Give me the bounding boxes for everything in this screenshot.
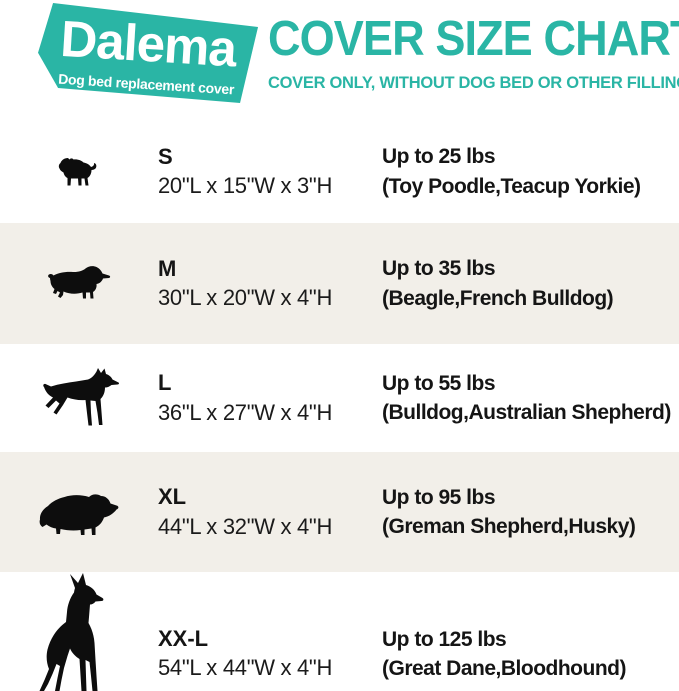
size-row-m: M 30"L x 20"W x 4"H Up to 35 lbs (Beagle…	[0, 223, 679, 344]
weight-capacity: Up to 25 lbs	[382, 144, 679, 170]
size-label: XL	[158, 484, 382, 510]
title-block: COVER SIZE CHART COVER ONLY, WITHOUT DOG…	[268, 15, 679, 93]
brand-name: Dalema	[59, 13, 260, 76]
example-breeds: (Bulldog,Australian Shepherd)	[382, 401, 679, 425]
great-dane-silhouette-icon	[37, 572, 121, 691]
weight-capacity: Up to 35 lbs	[382, 256, 679, 282]
size-row-s: S 20"L x 15"W x 3"H Up to 25 lbs (Toy Po…	[0, 120, 679, 223]
size-label: XX-L	[158, 626, 382, 652]
weight-capacity: Up to 55 lbs	[382, 371, 679, 397]
weight-capacity: Up to 125 lbs	[382, 627, 679, 653]
weight-capacity: Up to 95 lbs	[382, 485, 679, 511]
doberman-silhouette-icon	[38, 367, 120, 429]
pug-silhouette-icon	[56, 156, 102, 188]
size-label: S	[158, 144, 382, 170]
header: Dalema Dog bed replacement cover COVER S…	[0, 0, 679, 120]
size-dimensions: 44"L x 32"W x 4"H	[158, 514, 382, 540]
cover-size-chart-infographic: Dalema Dog bed replacement cover COVER S…	[0, 0, 679, 691]
size-row-xxl: XX-L 54"L x 44"W x 4"H Up to 125 lbs (Gr…	[0, 572, 679, 691]
size-dimensions: 30"L x 20"W x 4"H	[158, 285, 382, 311]
brand-logo-banner: Dalema Dog bed replacement cover	[33, 0, 261, 110]
example-breeds: (Great Dane,Bloodhound)	[382, 657, 679, 681]
spaniel-silhouette-icon	[46, 265, 112, 303]
page-title: COVER SIZE CHART	[268, 15, 679, 64]
size-row-l: L 36"L x 27"W x 4"H Up to 55 lbs (Bulldo…	[0, 344, 679, 452]
fluffy-dog-silhouette-icon	[36, 486, 122, 538]
size-row-xl: XL 44"L x 32"W x 4"H Up to 95 lbs (Grema…	[0, 452, 679, 572]
size-label: L	[158, 370, 382, 396]
size-label: M	[158, 256, 382, 282]
size-dimensions: 54"L x 44"W x 4"H	[158, 655, 382, 681]
example-breeds: (Beagle,French Bulldog)	[382, 287, 679, 311]
size-dimensions: 20"L x 15"W x 3"H	[158, 173, 382, 199]
example-breeds: (Greman Shepherd,Husky)	[382, 515, 679, 539]
page-subtitle: COVER ONLY, WITHOUT DOG BED OR OTHER FIL…	[268, 73, 679, 93]
example-breeds: (Toy Poodle,Teacup Yorkie)	[382, 175, 679, 199]
size-dimensions: 36"L x 27"W x 4"H	[158, 400, 382, 426]
